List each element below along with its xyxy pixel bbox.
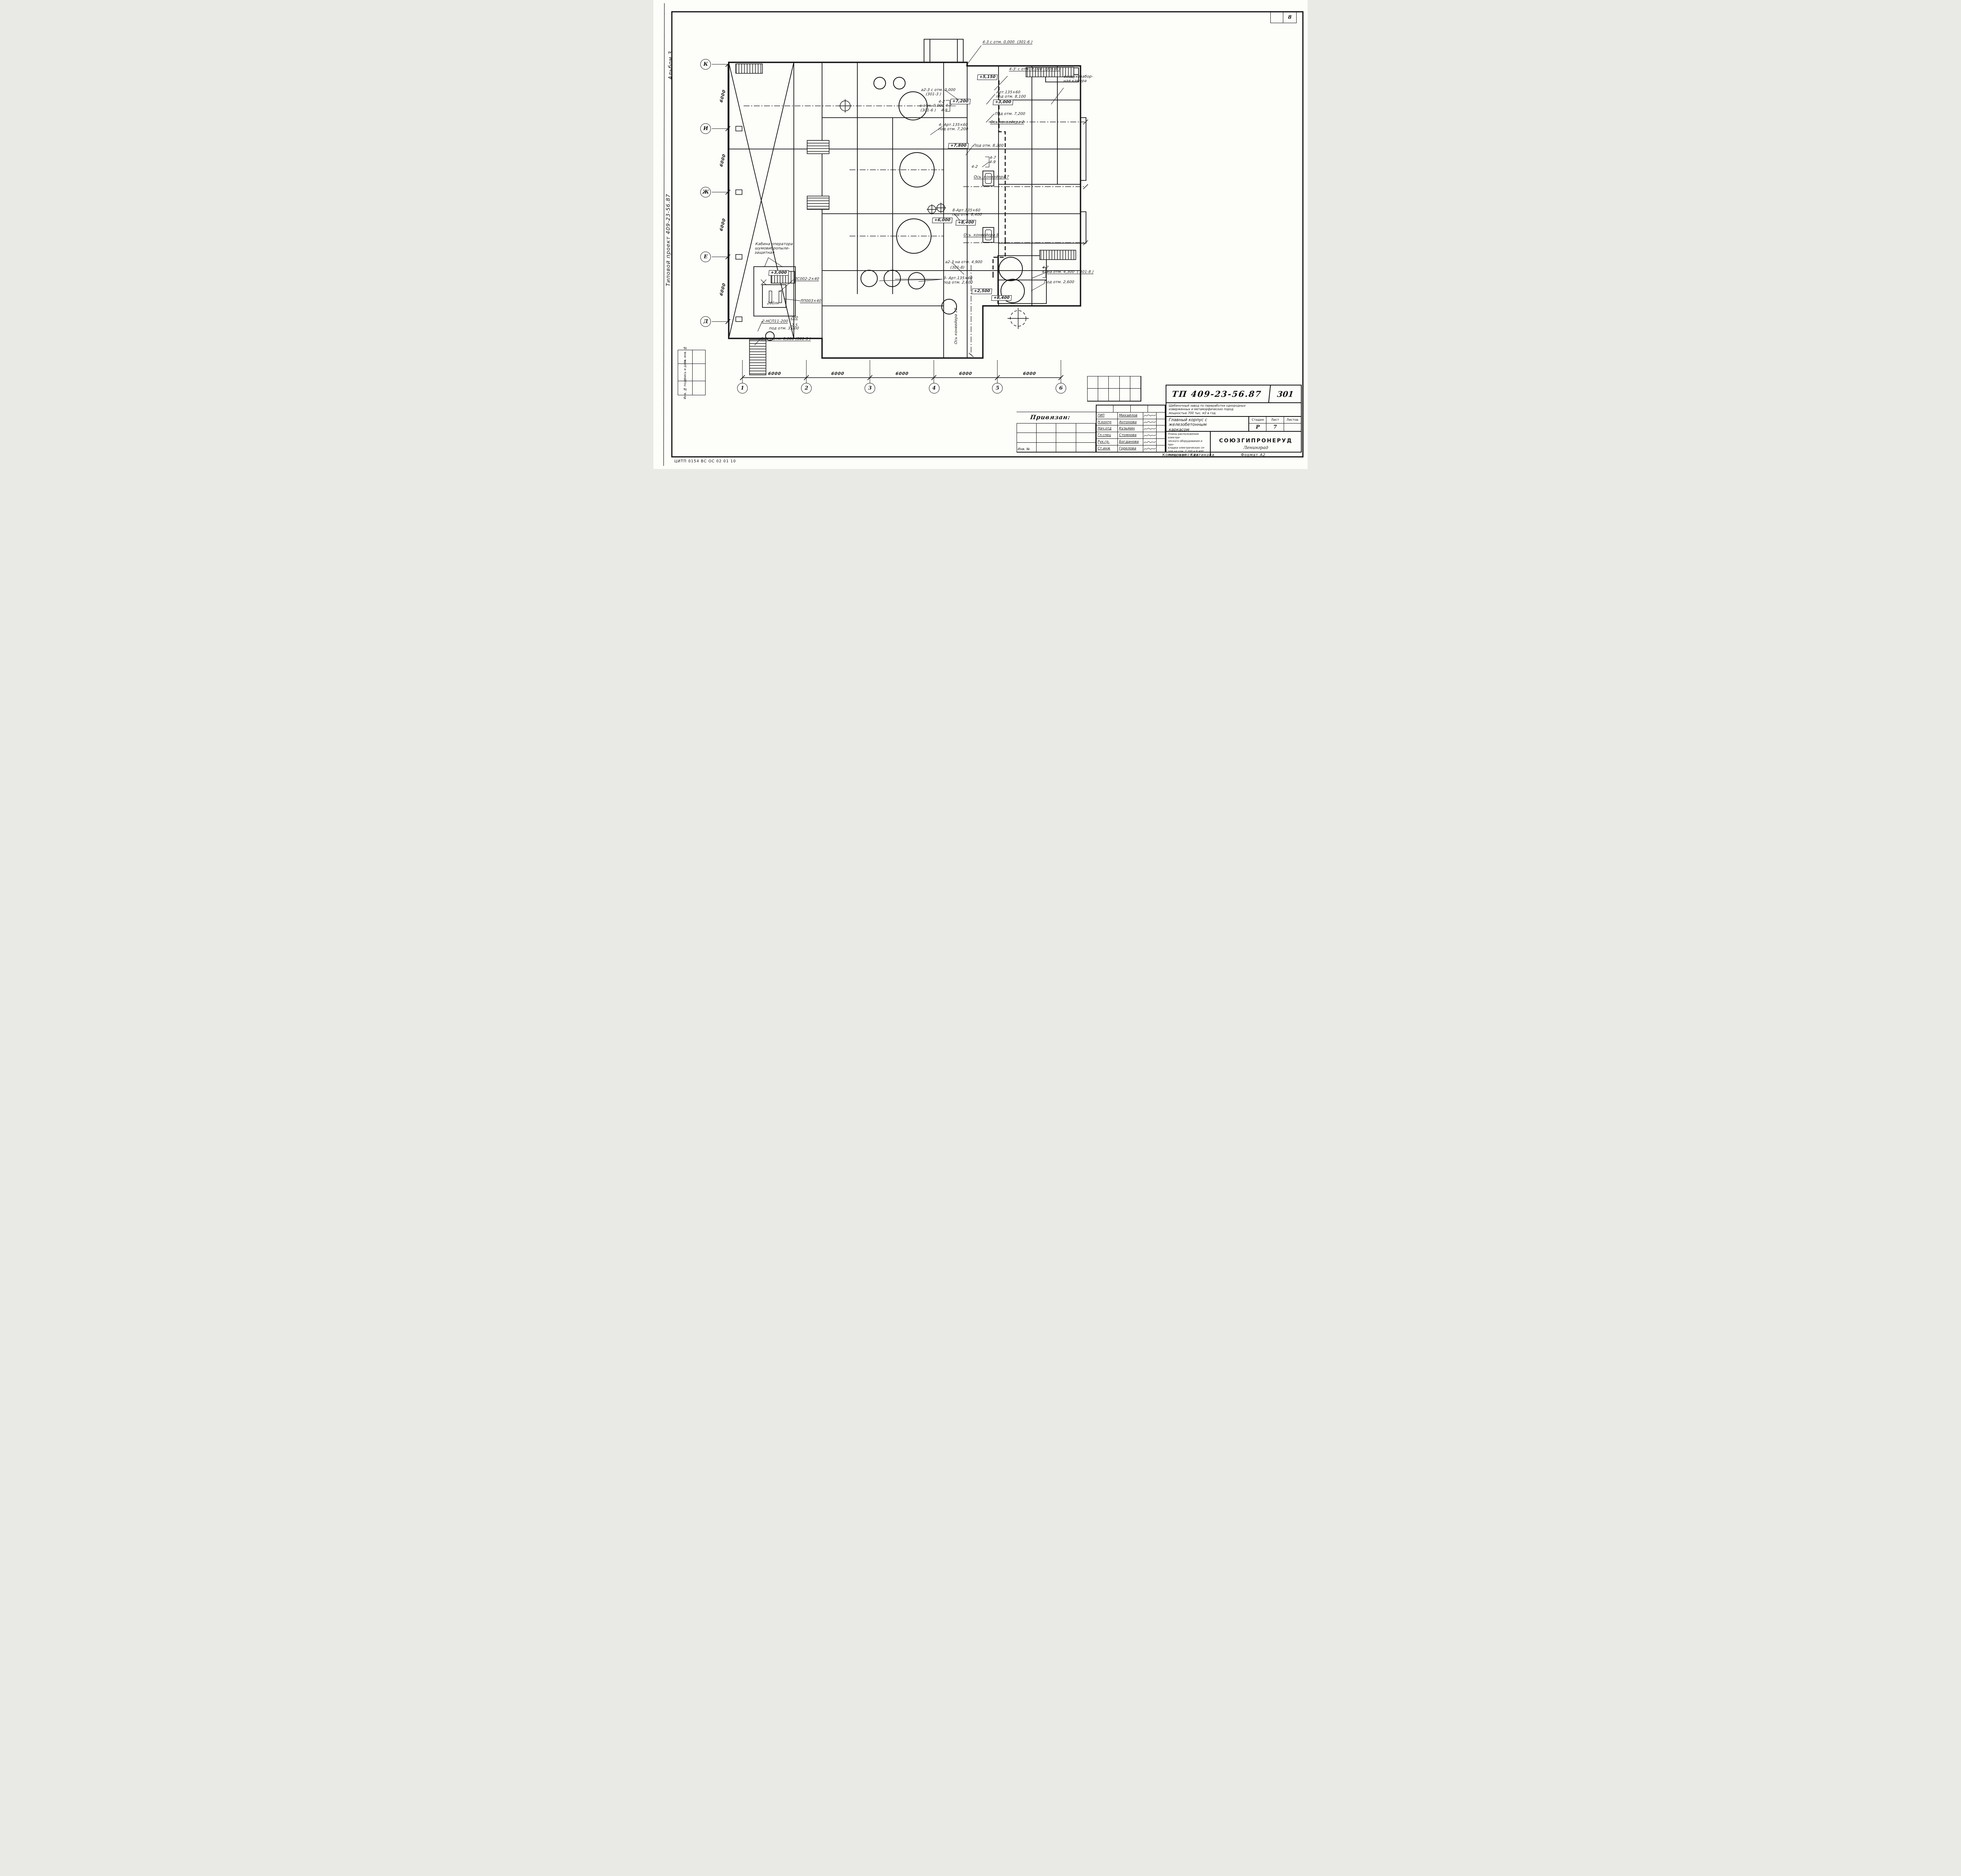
org-city: Ленинград	[1243, 445, 1268, 450]
revision-grid-cell	[1076, 433, 1096, 442]
page-number: 8	[1283, 12, 1297, 23]
lists-label: Листов	[1284, 417, 1301, 423]
signer-date	[1157, 413, 1165, 419]
revision-grid-cell	[1037, 433, 1056, 442]
level-mark: +3,000	[993, 100, 1013, 105]
plan-note: 6-1 с отм. 0,000 (301-3 )	[760, 337, 811, 341]
project-description: Щебеночный завод по переработке однородн…	[1166, 403, 1301, 417]
signer-name: Стоянова	[1118, 432, 1143, 438]
margin-stamp-cell: Инв. № подл.	[678, 381, 706, 395]
signer-signature	[1143, 439, 1157, 445]
stage-table: Стадия Лист Листов Р 7	[1248, 417, 1301, 431]
signature-row: Гл.спецСтоянова	[1097, 432, 1165, 439]
plan-note: 4-7 4-9	[989, 156, 996, 164]
plan-note: 4- Арт.135×60 под отм. 7,200	[938, 123, 969, 131]
level-mark: +7,800	[948, 143, 969, 149]
revision-grid-cell	[1017, 424, 1037, 433]
plan-note: (301-8)	[950, 265, 965, 270]
signer-name: Михайлов	[1118, 413, 1143, 419]
revision-grid: Инв. №	[1017, 423, 1096, 453]
org-name: СОЮЗГИПРОНЕРУД	[1219, 438, 1292, 444]
approval-grid-cell	[1088, 376, 1098, 389]
signer-role: Гл.спец	[1097, 432, 1118, 438]
plan-note: 3- Арт.135×60 под отм. 2,600	[943, 276, 973, 285]
margin-stamp-cell: Подпись и дата	[678, 364, 706, 382]
signature-row: Н.контрАнтонова	[1097, 419, 1165, 426]
signer-date	[1157, 432, 1165, 438]
inv-number-label: Инв. №	[1017, 443, 1037, 452]
plan-note: 200лк	[767, 301, 780, 305]
level-mark: +7,200	[950, 99, 971, 104]
signer-name: Горелова	[1118, 445, 1143, 452]
conveyor-axis-label: Ось конвейера 7	[974, 175, 1010, 179]
level-mark: +5,150	[977, 75, 997, 80]
plan-note: 4-3 с отм. 0,000 (301-6 )	[982, 40, 1033, 44]
sheet-title: Планы расположения электри- ческого обор…	[1166, 432, 1210, 456]
doc-number-row: ТП 409-23-56.87 301	[1166, 385, 1301, 403]
signature-scribble	[1143, 433, 1156, 438]
plan-note: воздухозабор- ная камера	[1063, 75, 1093, 83]
plan-note: а2-3 на отм. 4,900	[945, 260, 982, 264]
object-title: Главный корпус с железобетонным каркасом	[1166, 417, 1248, 431]
signer-name: Кузьмин	[1118, 425, 1143, 432]
plan-note: 200	[791, 316, 799, 320]
signer-date	[1157, 439, 1165, 445]
approval-grid-cell	[1098, 389, 1109, 401]
stage-label: Стадия	[1249, 417, 1266, 423]
signer-name: Богданова	[1118, 439, 1143, 445]
doc-number: ТП 409-23-56.87	[1166, 385, 1270, 402]
signer-role: ГИП	[1097, 413, 1118, 419]
signer-role: Ст.инж	[1097, 445, 1118, 452]
plan-note: 4-3' с отм. 0,000 (301-6 )	[1009, 67, 1061, 71]
margin-stamp-text: Инв. № подл.	[683, 377, 687, 399]
signature-table: ГИПМихайловН.контрАнтоноваНач.отдКузьмин…	[1096, 405, 1166, 453]
revision-grid-cell	[1076, 424, 1096, 433]
plan-note: на отм. 4,300 ( 301-8 )	[1047, 270, 1094, 274]
plan-note: под отм. 3,000	[769, 326, 799, 331]
title-block: ТП 409-23-56.87 301 Щебеночный завод по …	[1166, 385, 1302, 453]
approval-grid-cell	[1120, 376, 1130, 389]
plan-note: Под отм. 2,600	[1044, 280, 1074, 284]
conveyor-axis-label: Ось конвейера 8	[963, 233, 999, 237]
signature-row: Нач.отдКузьмин	[1097, 425, 1165, 432]
conveyor-axis-label: Ось конвейера 2	[990, 120, 1024, 124]
signature-row: Ст.инжГорелова	[1097, 445, 1165, 452]
revision-grid-cell	[1037, 424, 1056, 433]
plan-note: 4-2	[971, 165, 978, 169]
organization: СОЮЗГИПРОНЕРУД Ленинград	[1210, 432, 1301, 456]
revision-grid-cell	[1056, 433, 1076, 442]
level-mark: +8,400	[991, 295, 1012, 301]
signature-scribble	[1143, 440, 1156, 444]
footer-code: ЦИТП 0154 ВС ОС 02 01 10	[674, 459, 736, 464]
signer-date	[1157, 445, 1165, 452]
signature-scribble	[1143, 427, 1156, 431]
revision-grid-cell	[1056, 443, 1076, 452]
list-value: 7	[1266, 424, 1283, 431]
margin-stamp-empty	[693, 364, 705, 381]
approval-grid-cell	[1109, 376, 1119, 389]
level-mark: +2,500	[972, 289, 992, 294]
signer-date	[1157, 425, 1165, 432]
signer-signature	[1143, 413, 1157, 419]
signer-signature	[1143, 432, 1157, 438]
plan-note: Арт.135×60 под отм. 8,100	[996, 90, 1026, 99]
plan-note: Под отм. 8,200	[973, 144, 1004, 148]
approval-grid-cell	[1130, 376, 1141, 389]
plan-note: ЛП003×40	[800, 299, 821, 303]
revision-grid-cell	[1056, 424, 1076, 433]
list-label: Лист	[1266, 417, 1283, 423]
level-mark: +8,400	[955, 220, 976, 225]
signer-name: Антонова	[1118, 419, 1143, 425]
sheet-code: 301	[1268, 385, 1302, 402]
approval-grid-cell	[1130, 389, 1141, 401]
stage-value: Р	[1249, 424, 1266, 431]
plan-note: ЛС002-2×40	[794, 277, 819, 281]
margin-stamp-cell: Взам. инв. №	[678, 350, 706, 364]
plan-note: с отм. 0,000 4-7	[919, 104, 952, 108]
signer-role: Н.контр	[1097, 419, 1118, 425]
signer-signature	[1143, 419, 1157, 425]
signer-signature	[1143, 425, 1157, 432]
lists-value	[1284, 424, 1301, 431]
signer-role: Рук.гр.	[1097, 439, 1118, 445]
revision-grid-cell	[1037, 443, 1056, 452]
plan-note: 2-НСП11-200	[762, 319, 788, 324]
revision-grid-cell	[1017, 433, 1037, 442]
approval-grid-cell	[1098, 376, 1109, 389]
level-mark: +3,000	[768, 270, 789, 276]
signature-scribble	[1143, 447, 1156, 451]
plan-note: Под отм. 7,200	[995, 112, 1025, 116]
margin-stamp-label: Инв. № подл.	[678, 381, 693, 395]
approval-grid-cell	[1088, 389, 1098, 401]
signer-signature	[1143, 445, 1157, 452]
plan-note: 8-Арт.135×60 под отм. 8,400	[952, 208, 982, 217]
bind-label: Привязан:	[1030, 414, 1071, 421]
signature-row: ГИПМихайлов	[1097, 413, 1165, 419]
plan-note: а2-3 с отм. 0,000 (301-3 )	[920, 88, 956, 96]
plan-note: Кабина оператора шумовибропыле- защитная	[754, 242, 793, 255]
signature-header-row	[1097, 405, 1165, 413]
approval-grid	[1087, 376, 1141, 402]
approval-grid-cell	[1120, 389, 1130, 401]
margin-stamp-empty	[693, 381, 705, 395]
page-number-box: 8	[1270, 12, 1297, 23]
conveyor-axis-label: Ось конвейера 10	[954, 308, 958, 345]
project-label: Типовой проект 409-23-56.87	[665, 194, 671, 286]
page-number-empty-cell	[1270, 12, 1283, 23]
signer-date	[1157, 419, 1165, 425]
drawing-sheet: КИЖЕД123456 6000600060006000600060006000…	[653, 0, 1308, 469]
signature-scribble	[1143, 413, 1156, 418]
revision-grid-cell	[1076, 443, 1096, 452]
signature-scribble	[1143, 420, 1156, 424]
approval-grid-cell	[1109, 389, 1119, 401]
level-mark: +6,000	[932, 218, 952, 223]
titleblock-shelf-line	[1017, 412, 1096, 412]
plan-note: (301-6 ) 4-9	[920, 108, 948, 113]
signer-role: Нач.отд	[1097, 425, 1118, 432]
margin-stamp-empty	[693, 350, 705, 364]
album-label: Альбом 3	[668, 51, 674, 80]
signature-row: Рук.гр.Богданова	[1097, 439, 1165, 445]
